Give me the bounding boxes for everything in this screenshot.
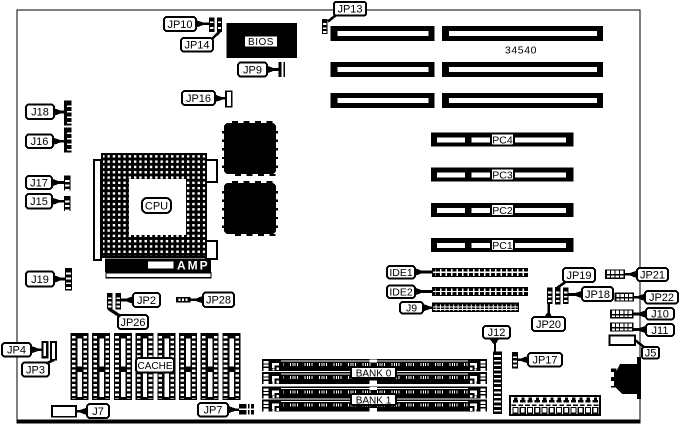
- svg-text:JP19: JP19: [566, 270, 591, 282]
- svg-text:JP7: JP7: [204, 405, 223, 417]
- svg-text:J7: J7: [92, 406, 104, 418]
- svg-text:J15: J15: [30, 196, 48, 208]
- svg-text:JP9: JP9: [243, 64, 262, 76]
- svg-text:AMP: AMP: [177, 259, 210, 273]
- svg-text:JP13: JP13: [337, 4, 362, 16]
- svg-text:JP26: JP26: [120, 317, 145, 329]
- svg-text:J19: J19: [31, 274, 49, 286]
- svg-text:J9: J9: [406, 303, 417, 315]
- svg-text:J5: J5: [645, 348, 657, 360]
- svg-text:PC4: PC4: [492, 134, 513, 146]
- svg-text:BIOS: BIOS: [248, 37, 274, 48]
- svg-text:JP20: JP20: [536, 319, 561, 331]
- svg-text:CACHE: CACHE: [137, 361, 172, 372]
- svg-text:BANK 1: BANK 1: [356, 395, 392, 406]
- svg-text:JP10: JP10: [167, 19, 192, 31]
- svg-text:PC2: PC2: [492, 205, 513, 217]
- svg-text:IDE2: IDE2: [389, 287, 413, 299]
- svg-text:JP17: JP17: [532, 355, 557, 367]
- svg-text:J18: J18: [31, 107, 49, 119]
- svg-text:JP16: JP16: [186, 93, 211, 105]
- svg-text:J16: J16: [31, 136, 49, 148]
- svg-text:JP21: JP21: [640, 269, 665, 281]
- svg-text:BANK 0: BANK 0: [356, 368, 392, 379]
- svg-text:PC3: PC3: [492, 169, 513, 181]
- svg-text:J12: J12: [488, 327, 506, 339]
- svg-text:IDE1: IDE1: [389, 267, 413, 279]
- svg-text:JP14: JP14: [184, 40, 209, 52]
- svg-text:JP4: JP4: [7, 345, 26, 357]
- svg-text:PC1: PC1: [492, 240, 513, 252]
- svg-text:JP18: JP18: [585, 289, 610, 301]
- svg-text:J11: J11: [652, 325, 669, 337]
- svg-text:JP22: JP22: [649, 292, 674, 304]
- svg-text:J10: J10: [651, 309, 669, 321]
- svg-text:CPU: CPU: [145, 200, 168, 212]
- svg-text:J17: J17: [30, 177, 48, 189]
- svg-text:34540: 34540: [505, 45, 537, 57]
- svg-text:JP2: JP2: [137, 295, 156, 307]
- svg-text:JP28: JP28: [206, 295, 231, 307]
- svg-text:JP3: JP3: [26, 364, 45, 376]
